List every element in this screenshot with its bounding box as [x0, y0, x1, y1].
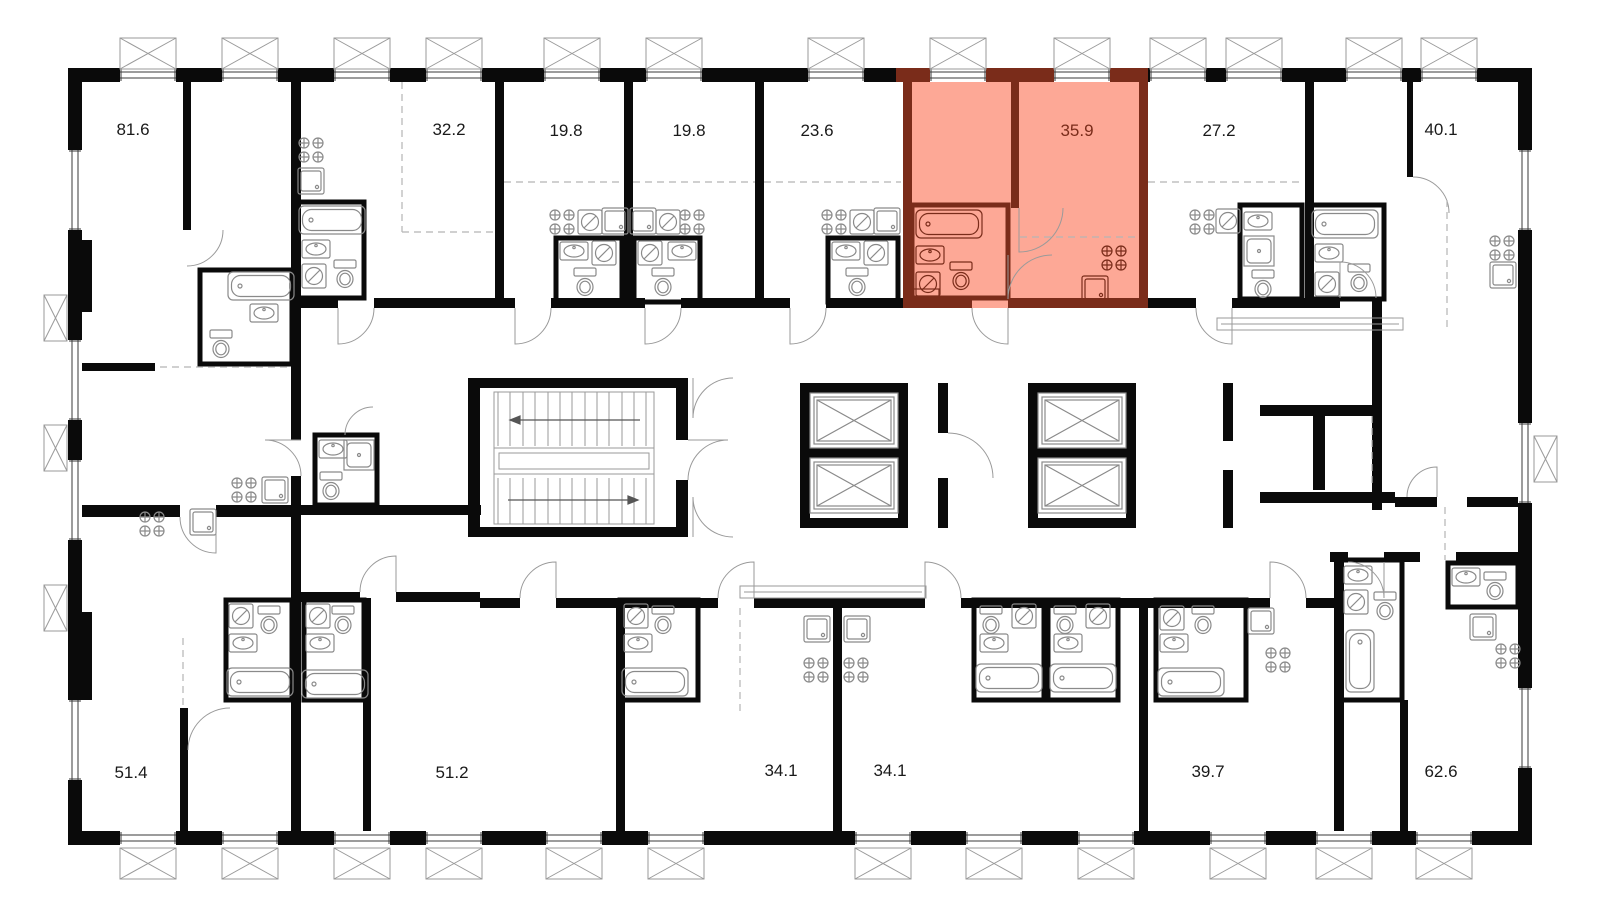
window-icon — [120, 831, 176, 845]
window-icon — [426, 831, 482, 845]
balcony-icon — [855, 848, 911, 879]
window-icon — [222, 831, 278, 845]
window-icon — [1518, 423, 1532, 503]
window-icon — [334, 831, 390, 845]
washbasin-icon — [319, 440, 347, 458]
apartment-19-8-a[interactable] — [504, 82, 624, 298]
balcony-icon — [546, 848, 602, 879]
apartment-51-2[interactable] — [301, 602, 616, 831]
balcony-icon — [44, 585, 67, 631]
apartment-34-1-a[interactable] — [625, 608, 833, 831]
stairs-icon — [494, 392, 654, 524]
window-icon — [68, 700, 82, 780]
balcony-icon — [44, 295, 67, 341]
balcony-icon — [1421, 38, 1477, 69]
window-icon — [808, 68, 864, 82]
apartment-27-2[interactable] — [1148, 82, 1305, 298]
floor-plan-page: 81.6 32.2 19.8 19.8 23.6 35.9 27.2 40.1 … — [0, 0, 1601, 912]
window-icon — [222, 68, 278, 82]
window-icon — [1518, 150, 1532, 230]
balcony-icon — [334, 848, 390, 879]
window-icon — [68, 150, 82, 230]
window-icon — [1078, 831, 1134, 845]
balcony-icon — [1078, 848, 1134, 879]
balcony-icon — [426, 848, 482, 879]
window-icon — [1316, 831, 1372, 845]
balcony-icon — [1150, 38, 1206, 69]
balcony-icon — [44, 425, 67, 471]
toilet-icon — [320, 472, 342, 500]
balcony-icon — [646, 38, 702, 69]
window-icon — [930, 68, 986, 82]
window-icon — [544, 68, 600, 82]
window-icon — [1210, 831, 1266, 845]
window-icon — [546, 831, 602, 845]
balcony-icon — [1316, 848, 1372, 879]
balcony-icon — [1054, 38, 1110, 69]
window-icon — [646, 68, 702, 82]
window-icon — [1054, 68, 1110, 82]
balcony-icon — [1226, 38, 1282, 69]
balcony-icon — [334, 38, 390, 69]
window-icon — [1518, 688, 1532, 768]
window-icon — [426, 68, 482, 82]
apartment-40-1[interactable] — [1314, 82, 1518, 298]
balcony-icon — [120, 38, 176, 69]
elevator-icon — [1038, 393, 1126, 448]
balcony-icon — [930, 38, 986, 69]
balcony-icon — [222, 38, 278, 69]
apartment-23-6[interactable] — [764, 82, 903, 298]
floor-plan-svg: 81.6 32.2 19.8 19.8 23.6 35.9 27.2 40.1 … — [0, 0, 1601, 912]
apartment-62-6[interactable] — [1344, 562, 1518, 831]
balcony-icon — [1534, 436, 1557, 482]
apartment-51-4[interactable] — [82, 517, 291, 831]
window-icon — [648, 831, 704, 845]
balcony-icon — [648, 848, 704, 879]
apartment-32-2[interactable] — [301, 82, 495, 298]
balcony-icon — [1210, 848, 1266, 879]
apartment-19-8-b[interactable] — [633, 82, 755, 298]
window-icon — [855, 831, 911, 845]
window-icon — [1346, 68, 1402, 82]
balcony-icon — [222, 848, 278, 879]
apartment-39-7[interactable] — [1148, 608, 1334, 831]
balcony-icon — [120, 848, 176, 879]
window-icon — [68, 460, 82, 540]
balcony-icon — [808, 38, 864, 69]
apartment-34-1-b[interactable] — [842, 608, 1139, 831]
elevator-icon — [1038, 458, 1126, 513]
elevator-icon — [810, 458, 898, 513]
elevator-icon — [810, 393, 898, 448]
balcony-icon — [544, 38, 600, 69]
balcony-icon — [1346, 38, 1402, 69]
corridor-closet — [740, 586, 926, 598]
shower-icon — [344, 440, 374, 470]
apartment-35-9[interactable] — [912, 82, 1139, 298]
balcony-icon — [966, 848, 1022, 879]
window-icon — [966, 831, 1022, 845]
apartment-81-6[interactable] — [82, 82, 291, 506]
window-icon — [1226, 68, 1282, 82]
window-icon — [1421, 68, 1477, 82]
window-icon — [120, 68, 176, 82]
window-icon — [334, 68, 390, 82]
window-icon — [68, 340, 82, 420]
building-core — [468, 318, 1403, 598]
window-icon — [1416, 831, 1472, 845]
window-icon — [1150, 68, 1206, 82]
balcony-icon — [426, 38, 482, 69]
balcony-icon — [1416, 848, 1472, 879]
